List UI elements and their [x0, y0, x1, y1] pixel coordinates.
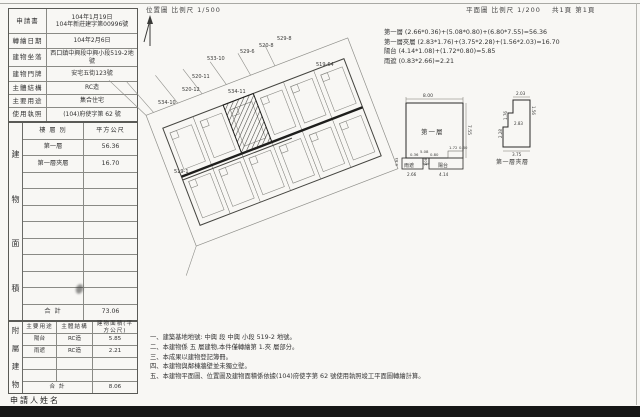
- lot-label: 534-11: [228, 89, 246, 95]
- right-border-line: [636, 3, 637, 405]
- side-char: 建: [12, 361, 20, 372]
- empty-cell: [23, 272, 83, 288]
- annex-header-use: 主要用途: [23, 322, 56, 333]
- building-area-vertical-title: 建 物 面 積: [9, 123, 23, 320]
- info-value-transcribe-date: 104年2月6日: [47, 34, 137, 48]
- note-2: 二、本建物係 五 層建物,本件僅轉繪第 1.夾 層部分。: [150, 343, 425, 353]
- adjacent-lot-lines: [109, 23, 334, 276]
- notes-block: 一、建築基地地號: 中興 段 中興 小段 519-2 地號。 二、本建物係 五 …: [150, 333, 425, 382]
- application-info-table: 申請書 104年1月19日 104年新莊建字第00996號 轉繪日期 104年2…: [8, 8, 138, 122]
- floor-row-name: 第一層夾層: [23, 156, 83, 172]
- empty-cell: [93, 370, 137, 381]
- dim-top: 8.00: [423, 93, 433, 99]
- balcony-label: 陽台: [438, 162, 448, 169]
- dim-right: 7.55: [466, 125, 472, 135]
- note-5: 五、本建物平面圖、位置圖及建物面積係依據(104)府使字第 62 號使用執照竣工…: [150, 372, 425, 382]
- mezz-dim-mid-left: 1.76: [503, 111, 508, 120]
- annex-row-structure: RC造: [57, 334, 92, 345]
- empty-cell: [84, 255, 137, 271]
- annex-total-label: 合 計: [23, 382, 92, 393]
- annex-row-area: 5.85: [93, 334, 137, 345]
- info-value-building-location: 西口鎮中興段中興小段519-2地號: [47, 49, 137, 66]
- empty-cell: [84, 239, 137, 255]
- empty-cell: [84, 189, 137, 205]
- empty-cell: [23, 189, 83, 205]
- mezz-dim-mid: 2.83: [514, 121, 523, 126]
- lot-label: 520-12: [182, 87, 200, 93]
- info-label-application: 申請書: [9, 9, 46, 33]
- floor-row-area: 16.70: [84, 156, 137, 172]
- lot-label: 519-64: [316, 62, 334, 68]
- corner-width: 1.72: [449, 145, 458, 150]
- balcony-height: 1.08: [424, 157, 428, 166]
- info-value-use-permit: (104)府使字第 62 號: [47, 108, 137, 121]
- side-char: 建: [12, 149, 20, 160]
- lot-label: 529-6: [240, 49, 255, 55]
- survey-document-page: 位置圖 比例尺 1/500 平面圖 比例尺 1/200 共1頁 第1頁 申請書 …: [0, 0, 640, 417]
- mezz-dim-bottom: 3.75: [512, 152, 522, 157]
- application-date: 104年1月19日: [72, 14, 113, 22]
- location-map-scale-label: 位置圖 比例尺 1/500: [146, 4, 221, 14]
- empty-cell: [23, 288, 83, 304]
- lot-boundary: [146, 38, 398, 246]
- note-4: 四、本建物與鄰棟牆壁並未獨立壁。: [150, 362, 425, 372]
- column-header-floor: 樓 層 別: [23, 123, 83, 139]
- empty-cell: [23, 370, 56, 381]
- side-char: 物: [12, 379, 20, 390]
- building-block-outline: [163, 59, 381, 226]
- page-count-label: 共1頁 第1頁: [552, 4, 595, 14]
- empty-cell: [23, 255, 83, 271]
- empty-cell: [23, 222, 83, 238]
- dim-small: 0.36: [410, 152, 419, 157]
- side-char: 物: [12, 194, 20, 205]
- annex-header-area: 建物面積(平方公尺): [93, 322, 137, 333]
- party-wall-line: [181, 107, 362, 177]
- empty-cell: [84, 272, 137, 288]
- annex-row-structure: RC造: [57, 346, 92, 357]
- floor-row-area: 56.36: [84, 140, 137, 156]
- mezzanine-plan: [503, 97, 530, 151]
- location-map-drawing: [109, 0, 406, 276]
- building-area-table: 建 物 面 積 樓 層 別 平方公尺 第一層 56.36 第一層夾層 16.70…: [8, 122, 138, 321]
- annex-row-use: 雨遮: [23, 346, 56, 357]
- lot-label: 534-10: [158, 100, 176, 106]
- dim-strip-height: 0.80: [430, 152, 439, 157]
- empty-cell: [57, 370, 92, 381]
- unit-outlines: [170, 67, 375, 218]
- floor1-title: 第一層: [421, 127, 444, 136]
- info-label-structure: 主體結構: [9, 82, 46, 94]
- empty-cell: [23, 173, 83, 189]
- empty-cell: [23, 358, 56, 369]
- annex-total-value: 8.06: [93, 382, 137, 393]
- side-char: 屬: [12, 343, 20, 354]
- info-value-address: 安宅五街123號: [47, 67, 137, 81]
- first-floor-plan-labels: 第一層 8.00 7.55 0.36 5.08 0.80 雨遮 2.66 0.8…: [394, 93, 472, 177]
- lot-label: 519-1: [174, 169, 189, 175]
- applicant-name-label: 申請人姓名: [10, 395, 60, 406]
- formula-balcony: 陽台 (4.14*1.08)+(1.72*0.80)=5.85: [384, 47, 560, 57]
- column-header-sqm: 平方公尺: [84, 123, 137, 139]
- empty-cell: [23, 239, 83, 255]
- empty-cell: [84, 206, 137, 222]
- info-value-main-use: 集合住宅: [47, 95, 137, 107]
- info-label-transcribe-date: 轉繪日期: [9, 34, 46, 48]
- balcony-width: 4.14: [439, 172, 449, 177]
- lot-label: 520-11: [192, 74, 210, 80]
- mezzanine-plan-labels: 2.03 1.56 1.76 2.83 2.28 3.75 第一層夾層: [496, 91, 536, 166]
- dim-strip: 5.08: [420, 149, 429, 154]
- lot-label: 533-10: [207, 56, 225, 62]
- mezz-dim-right: 1.56: [531, 106, 536, 115]
- subject-building-hatched: [223, 93, 272, 153]
- unit-dividers: [193, 70, 351, 213]
- formula-canopy: 雨遮 (0.83*2.66)=2.21: [384, 57, 560, 67]
- mezz-dim-low-left: 2.28: [498, 129, 503, 138]
- canopy-label: 雨遮: [404, 162, 414, 169]
- party-wall-line-2: [183, 138, 292, 180]
- lot-number-labels: 533-10 529-6 520-8 529-8 520-11 520-12 5…: [158, 36, 334, 175]
- floor-plan-scale-label: 平面圖 比例尺 1/200: [466, 4, 541, 14]
- info-value-structure: RC造: [47, 82, 137, 94]
- empty-cell: [57, 358, 92, 369]
- empty-cell: [93, 358, 137, 369]
- annex-row-area: 2.21: [93, 346, 137, 357]
- lot-label: 529-8: [277, 36, 292, 42]
- empty-cell: [23, 206, 83, 222]
- side-char: 面: [12, 238, 20, 249]
- info-label-main-use: 主要用途: [9, 95, 46, 107]
- canopy-width: 2.66: [407, 172, 417, 177]
- floor-row-name: 第一層: [23, 140, 83, 156]
- total-row-label: 合 計: [23, 305, 83, 321]
- note-3: 三、本成果以建物登記簿冊。: [150, 353, 425, 363]
- scan-bottom-bar: [0, 406, 640, 417]
- annex-row-use: 陽台: [23, 334, 56, 345]
- annex-header-structure: 主體結構: [57, 322, 92, 333]
- side-char: 附: [12, 325, 20, 336]
- info-value-application: 104年1月19日 104年新莊建字第00996號: [47, 9, 137, 33]
- info-label-address: 建物門牌: [9, 67, 46, 81]
- area-computation-block: 第一層 (2.66*0.36)+(5.08*0.80)+(6.80*7.55)=…: [384, 28, 560, 66]
- mezz-dim-top: 2.03: [516, 91, 526, 96]
- corner-height: 0.80: [459, 145, 468, 150]
- annex-vertical-title: 附 屬 建 物: [9, 322, 23, 393]
- empty-cell: [84, 222, 137, 238]
- total-row-value: 73.06: [84, 305, 137, 321]
- annex-structure-table: 附 屬 建 物 主要用途 主體結構 建物面積(平方公尺) 陽台 RC造 5.85…: [8, 321, 138, 394]
- note-1: 一、建築基地地號: 中興 段 中興 小段 519-2 地號。: [150, 333, 425, 343]
- north-arrow-icon: [144, 15, 153, 46]
- canopy-height: 0.83: [394, 157, 399, 166]
- lot-label: 520-8: [259, 43, 274, 49]
- info-label-building-location: 建物坐落: [9, 49, 46, 66]
- formula-mezzanine: 第一層夾層 (2.83*1.76)+(3.75*2.28)+(1.56*2.03…: [384, 38, 560, 48]
- empty-cell: [84, 173, 137, 189]
- formula-floor1: 第一層 (2.66*0.36)+(5.08*0.80)+(6.80*7.55)=…: [384, 28, 560, 38]
- side-char: 積: [12, 283, 20, 294]
- info-label-use-permit: 使用執照: [9, 108, 46, 121]
- mezz-title: 第一層夾層: [496, 158, 529, 166]
- empty-cell: [84, 288, 137, 304]
- annex-grid: 主要用途 主體結構 建物面積(平方公尺) 陽台 RC造 5.85 雨遮 RC造 …: [23, 322, 137, 393]
- application-doc-number: 104年新莊建字第00996號: [56, 21, 129, 29]
- first-floor-plan: [402, 97, 466, 169]
- top-border-line: [0, 3, 640, 4]
